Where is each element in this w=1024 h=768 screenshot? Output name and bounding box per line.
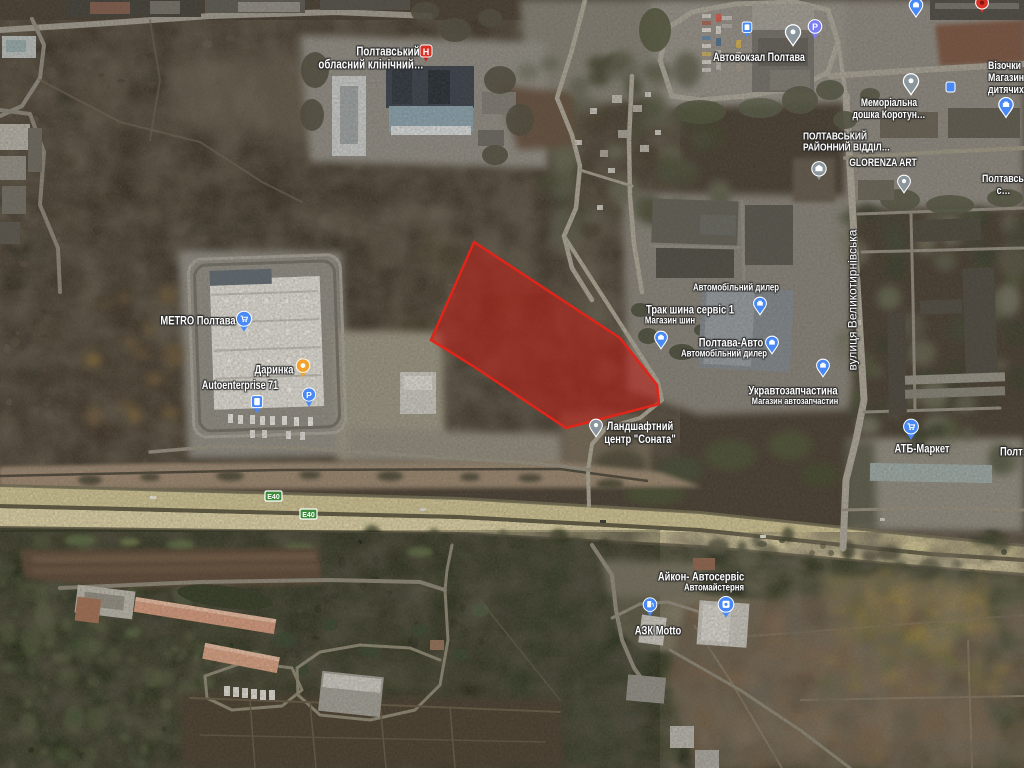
svg-text:E40: E40	[267, 494, 280, 501]
svg-text:E40: E40	[302, 512, 315, 519]
